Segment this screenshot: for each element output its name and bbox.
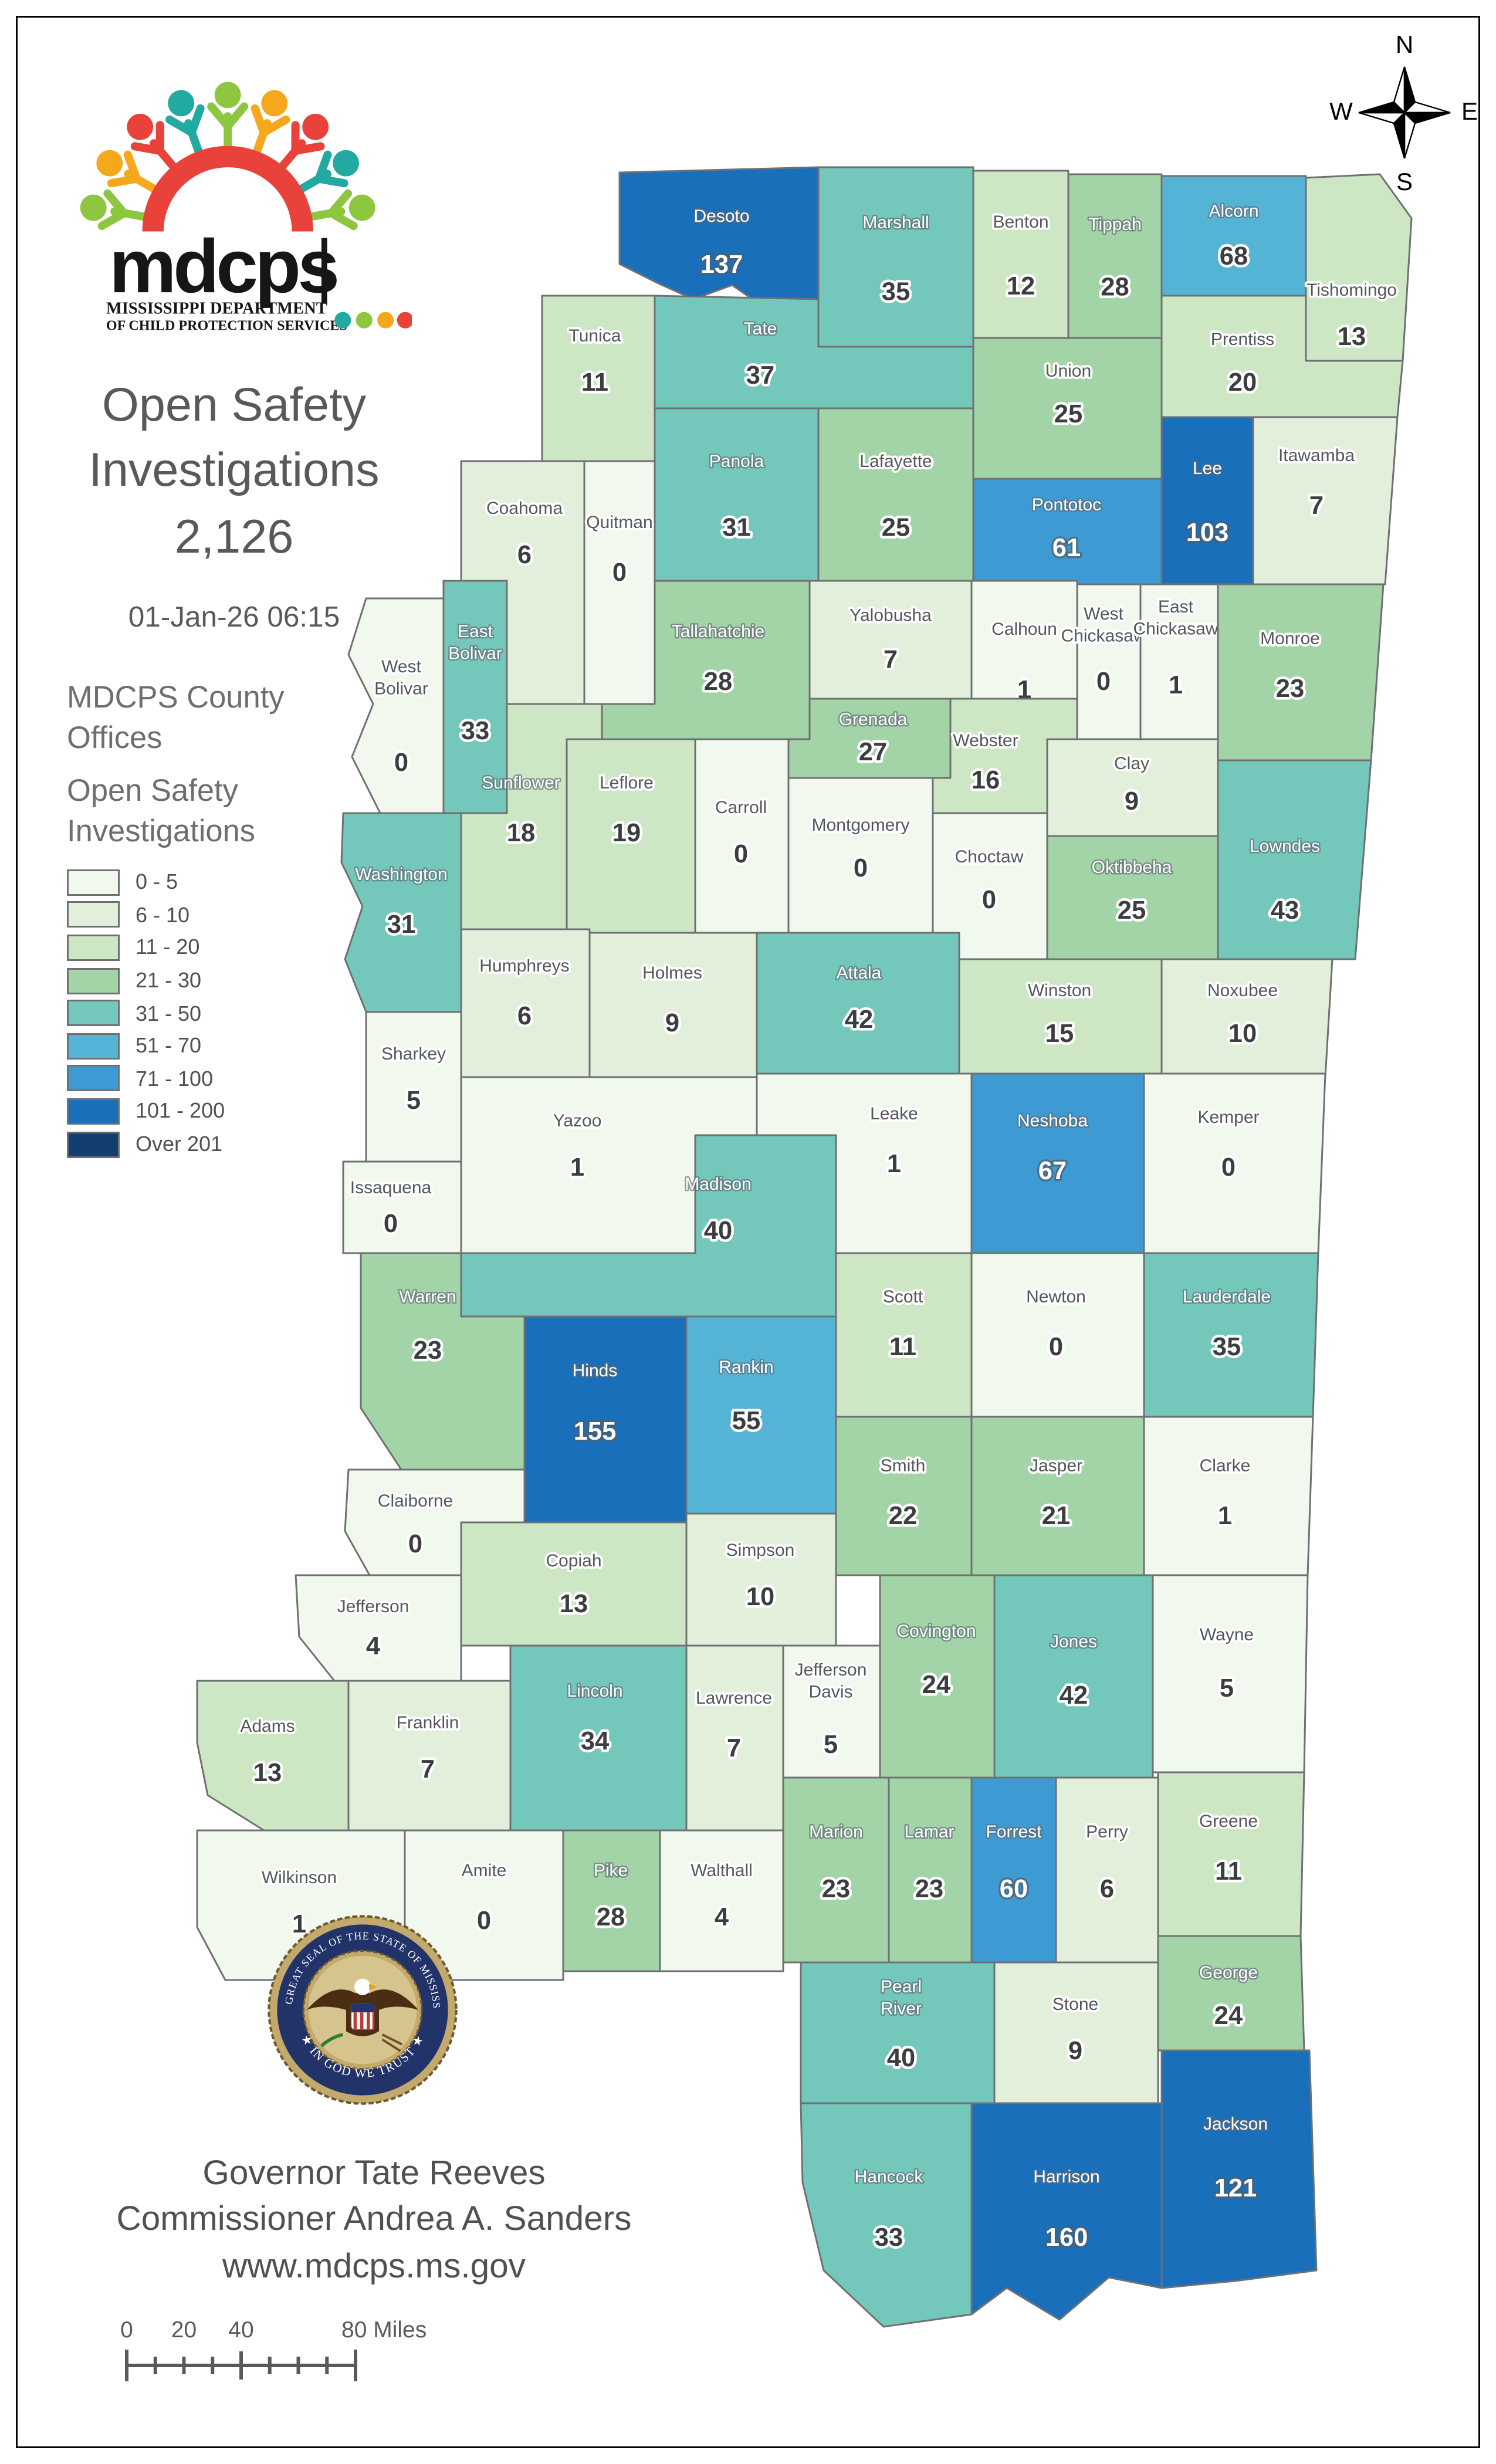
county-name: Newton — [1026, 1287, 1086, 1307]
county-value: 0 — [734, 840, 748, 868]
county-name: Jackson — [1203, 2114, 1268, 2134]
county-value: 160 — [1045, 2223, 1088, 2252]
county-george: George24 — [1158, 1936, 1304, 2050]
county-value: 15 — [1045, 1020, 1074, 1048]
scale-label-40: 40 — [228, 2317, 253, 2343]
footer-commissioner: Commissioner Andrea A. Sanders — [53, 2197, 695, 2243]
county-name: Panola — [709, 452, 764, 471]
county-value: 5 — [1220, 1674, 1234, 1703]
county-lowndes: Lowndes43 — [1218, 760, 1371, 959]
county-value: 28 — [704, 668, 732, 696]
county-name: Walthall — [691, 1861, 753, 1880]
county-lafayette: Lafayette25 — [818, 408, 973, 581]
county-name: Chickasaw — [1133, 620, 1218, 639]
county-quitman: Quitman0 — [584, 461, 655, 704]
county-value: 16 — [972, 766, 1000, 794]
county-shape — [783, 1778, 889, 1962]
county-value: 55 — [732, 1407, 760, 1435]
county-value: 19 — [612, 819, 641, 847]
county-value: 27 — [859, 738, 887, 766]
county-name: Franklin — [397, 1713, 459, 1732]
county-value: 0 — [477, 1907, 491, 1935]
county-clay: Clay9 — [1047, 739, 1218, 836]
county-name: Madison — [685, 1175, 751, 1194]
county-shape — [972, 1778, 1056, 1962]
county-value: 0 — [1221, 1153, 1236, 1182]
county-adams: Adams13 — [197, 1681, 348, 1830]
county-tishomingo: Tishomingo13 — [1306, 174, 1412, 361]
county-name: Noxubee — [1207, 981, 1278, 1000]
county-value: 43 — [1271, 896, 1299, 925]
county-name: Sharkey — [381, 1044, 446, 1064]
county-name: West — [381, 657, 421, 676]
county-shape — [655, 408, 818, 581]
county-name: Sunflower — [482, 773, 560, 793]
county-shape — [197, 1681, 348, 1830]
county-union: Union25 — [973, 338, 1162, 479]
county-value: 20 — [1228, 368, 1257, 397]
county-name: Coahoma — [486, 499, 563, 518]
county-name: Issaquena — [350, 1178, 432, 1197]
county-shape — [959, 959, 1162, 1077]
county-value: 23 — [414, 1336, 442, 1365]
county-value: 0 — [1096, 668, 1111, 696]
county-name: Leflore — [600, 773, 654, 793]
county-shape — [1158, 1936, 1304, 2050]
county-name: Warren — [399, 1287, 456, 1307]
county-value: 1 — [1218, 1502, 1232, 1530]
county-name: Hancock — [855, 2167, 924, 2187]
county-name: Lauderdale — [1183, 1287, 1271, 1307]
county-value: 5 — [824, 1731, 838, 1759]
county-shape — [818, 408, 973, 581]
county-name: Tate — [744, 319, 777, 339]
county-value: 31 — [387, 911, 415, 939]
county-grenada: Grenada27 — [788, 699, 950, 778]
county-winston: Winston15 — [959, 959, 1162, 1077]
map-scale-bar: 0 20 40 80 Miles — [102, 2316, 507, 2401]
county-holmes: Holmes9 — [590, 933, 757, 1077]
county-shape — [818, 167, 973, 347]
county-smith: Smith22 — [836, 1417, 972, 1575]
county-pontotoc: Pontotoc61 — [973, 479, 1162, 584]
county-value: 0 — [408, 1530, 422, 1558]
county-value: 42 — [845, 1006, 873, 1034]
county-name: Yazoo — [553, 1111, 602, 1131]
county-value: 0 — [612, 559, 627, 587]
county-value: 34 — [581, 1727, 609, 1755]
county-clarke: Clarke1 — [1144, 1417, 1313, 1575]
county-rankin: Rankin55 — [686, 1316, 836, 1514]
county-washington: Washington31 — [341, 813, 461, 1012]
county-shape — [757, 933, 959, 1074]
county-name: Union — [1045, 361, 1091, 381]
county-value: 0 — [854, 854, 868, 882]
county-name: Oktibbeha — [1092, 858, 1172, 877]
county-shape — [810, 581, 972, 699]
county-jefferson: Jefferson4 — [296, 1575, 461, 1681]
county-shape — [1144, 1417, 1313, 1575]
county-name: Choctaw — [955, 847, 1024, 867]
county-name: Monroe — [1260, 629, 1320, 648]
county-value: 23 — [915, 1875, 943, 1903]
county-name: Perry — [1086, 1822, 1128, 1842]
county-value: 9 — [1125, 787, 1139, 815]
county-shape — [620, 167, 818, 310]
county-alcorn: Alcorn68 — [1162, 176, 1306, 296]
county-tunica: Tunica11 — [542, 296, 655, 461]
county-scott: Scott11 — [836, 1253, 972, 1417]
county-value: 1 — [1169, 671, 1183, 699]
county-leflore: Leflore19 — [567, 739, 695, 933]
county-value: 67 — [1038, 1157, 1067, 1185]
county-east-chickasaw: EastChickasaw1 — [1133, 584, 1218, 739]
county-name: Wilkinson — [262, 1868, 337, 1887]
county-name: Tishomingo — [1307, 280, 1397, 300]
county-name: Forrest — [986, 1822, 1042, 1842]
county-value: 155 — [574, 1417, 617, 1446]
county-name: Jones — [1050, 1632, 1097, 1651]
county-name: Holmes — [642, 963, 702, 983]
county-marshall: Marshall35 — [818, 167, 973, 347]
county-shape — [563, 1830, 660, 1971]
county-name: Hinds — [573, 1361, 618, 1380]
county-shape — [461, 1522, 686, 1646]
county-value: 6 — [517, 541, 532, 569]
county-value: 21 — [1042, 1502, 1070, 1530]
county-shape — [296, 1575, 461, 1681]
county-value: 68 — [1220, 242, 1248, 270]
county-name: Washington — [355, 865, 447, 884]
county-value: 31 — [722, 514, 750, 542]
county-name: Smith — [881, 1456, 926, 1475]
county-greene: Greene11 — [1158, 1772, 1304, 1936]
county-name: Lincoln — [567, 1681, 622, 1701]
footer-website: www.mdcps.ms.gov — [53, 2243, 695, 2290]
county-value: 5 — [407, 1087, 421, 1115]
county-simpson: Simpson10 — [686, 1514, 836, 1646]
county-value: 10 — [746, 1583, 774, 1611]
county-shape — [1162, 417, 1253, 584]
county-name: Alcorn — [1209, 201, 1258, 221]
county-name: East — [458, 622, 493, 641]
county-name: Adams — [240, 1717, 295, 1736]
county-name: River — [881, 1999, 922, 2019]
county-name: Neshoba — [1017, 1111, 1088, 1131]
county-shape — [686, 1316, 836, 1514]
county-shape — [1158, 1772, 1304, 1936]
county-jackson: Jackson121 — [1162, 2050, 1316, 2288]
county-pearl-river: PearlRiver40 — [801, 1962, 994, 2103]
county-name: Quitman — [586, 513, 652, 532]
county-name: Kemper — [1197, 1108, 1259, 1127]
county-name: George — [1199, 1963, 1258, 1982]
county-value: 9 — [665, 1009, 679, 1037]
county-shape — [1068, 174, 1162, 338]
county-humphreys: Humphreys6 — [461, 929, 590, 1077]
mississippi-county-map: Desoto137Marshall35Benton12Tippah28Alcor… — [0, 0, 1496, 2464]
county-sharkey: Sharkey5 — [366, 1012, 461, 1162]
county-kemper: Kemper0 — [1144, 1074, 1325, 1253]
county-value: 33 — [875, 2223, 903, 2252]
county-name: Marshall — [862, 213, 929, 232]
county-value: 13 — [1338, 323, 1366, 351]
county-jones: Jones42 — [994, 1575, 1153, 1778]
footer-credits: Governor Tate Reeves Commissioner Andrea… — [53, 2151, 695, 2290]
county-name: Webster — [953, 731, 1018, 750]
county-name: Stone — [1052, 1995, 1098, 2014]
county-value: 13 — [560, 1590, 588, 1618]
scale-label-80: 80 Miles — [341, 2317, 427, 2343]
county-perry: Perry6 — [1056, 1778, 1158, 1962]
county-name: Attala — [837, 963, 882, 983]
county-value: 7 — [1309, 492, 1324, 520]
county-name: Wayne — [1200, 1625, 1254, 1644]
county-shape — [1162, 176, 1306, 296]
county-value: 7 — [884, 646, 898, 674]
county-attala: Attala42 — [757, 933, 959, 1074]
county-name: Lowndes — [1250, 837, 1320, 856]
county-name: Winston — [1028, 981, 1091, 1000]
county-pike: Pike28 — [563, 1830, 660, 1971]
county-value: 7 — [727, 1734, 741, 1762]
county-name: Grenada — [839, 710, 908, 729]
county-name: Amite — [462, 1861, 507, 1880]
county-value: 40 — [704, 1217, 732, 1245]
county-shape — [1218, 584, 1383, 760]
mississippi-state-seal: THE GREAT SEAL OF THE STATE OF MISSISSIP… — [264, 1911, 461, 2108]
county-name: Calhoun — [991, 620, 1057, 639]
report-page: mdcps MISSISSIPPI DEPARTMENT OF CHILD PR… — [0, 0, 1496, 2464]
county-value: 0 — [394, 749, 408, 777]
county-newton: Newton0 — [972, 1253, 1144, 1417]
county-name: Jasper — [1030, 1456, 1082, 1475]
county-value: 11 — [889, 1333, 916, 1361]
county-name: Lawrence — [696, 1688, 772, 1708]
county-value: 11 — [581, 368, 608, 397]
county-shape — [973, 171, 1068, 338]
county-value: 35 — [1213, 1333, 1241, 1361]
county-name: East — [1158, 597, 1194, 617]
county-value: 35 — [882, 277, 910, 306]
county-name: Clarke — [1200, 1456, 1251, 1475]
county-shape — [348, 598, 444, 813]
county-name: Tallahatchie — [672, 622, 764, 641]
county-name: Marion — [809, 1822, 863, 1842]
county-forrest: Forrest60 — [972, 1778, 1056, 1962]
county-shape — [972, 2103, 1162, 2320]
county-value: 0 — [982, 886, 996, 914]
county-lamar: Lamar23 — [889, 1778, 972, 1962]
county-name: Bolivar — [448, 644, 502, 664]
county-name: Claiborne — [378, 1491, 453, 1511]
county-name: Davis — [808, 1683, 852, 1702]
county-lincoln: Lincoln34 — [510, 1646, 686, 1830]
county-shape — [972, 1417, 1144, 1575]
county-name: Desoto — [693, 207, 749, 226]
county-name: Rankin — [719, 1358, 773, 1377]
county-panola: Panola31 — [655, 408, 818, 581]
county-name: Lamar — [904, 1822, 954, 1842]
county-value: 25 — [1118, 896, 1146, 925]
county-value: 6 — [1100, 1875, 1114, 1903]
county-name: Covington — [896, 1622, 976, 1641]
county-name: Pike — [594, 1861, 628, 1880]
county-name: West — [1084, 604, 1123, 624]
county-shape — [1162, 959, 1332, 1077]
county-value: 9 — [1068, 2037, 1082, 2065]
county-value: 40 — [887, 2044, 915, 2072]
county-copiah: Copiah13 — [461, 1522, 686, 1646]
county-value: 1 — [570, 1153, 584, 1182]
county-shape — [836, 1417, 972, 1575]
county-name: Jefferson — [337, 1597, 409, 1616]
county-value: 4 — [366, 1632, 380, 1660]
county-shape — [994, 1575, 1153, 1778]
county-name: Itawamba — [1278, 446, 1355, 465]
county-name: Greene — [1199, 1812, 1258, 1831]
county-lawrence: Lawrence7 — [686, 1646, 783, 1830]
county-value: 33 — [461, 717, 489, 745]
county-jasper: Jasper21 — [972, 1417, 1144, 1575]
county-noxubee: Noxubee10 — [1162, 959, 1332, 1077]
county-covington: Covington24 — [880, 1575, 994, 1778]
county-jefferson-davis: JeffersonDavis5 — [783, 1646, 880, 1778]
county-value: 37 — [746, 361, 774, 390]
county-name: Lee — [1193, 459, 1222, 478]
county-walthall: Walthall4 — [660, 1830, 783, 1971]
county-shape — [343, 1162, 461, 1253]
county-tippah: Tippah28 — [1068, 174, 1162, 338]
county-franklin: Franklin7 — [348, 1681, 510, 1830]
county-shape — [1162, 2050, 1316, 2288]
county-value: 28 — [1101, 273, 1129, 301]
county-shape — [686, 1514, 836, 1646]
county-wayne: Wayne5 — [1153, 1575, 1308, 1772]
county-value: 18 — [507, 819, 535, 847]
county-value: 0 — [384, 1210, 398, 1238]
county-value: 4 — [715, 1903, 729, 1931]
county-name: Clay — [1114, 754, 1149, 773]
county-name: Pontotoc — [1032, 495, 1101, 515]
county-value: 137 — [700, 251, 743, 279]
county-name: Harrison — [1033, 2167, 1099, 2187]
county-name: Benton — [993, 212, 1048, 232]
county-west-bolivar: WestBolivar0 — [348, 598, 444, 813]
county-name: Yalobusha — [849, 605, 932, 625]
county-shape — [889, 1778, 972, 1962]
county-value: 23 — [1276, 675, 1304, 703]
county-carroll: Carroll0 — [695, 739, 788, 933]
county-shape — [801, 2103, 972, 2327]
footer-governor: Governor Tate Reeves — [53, 2151, 695, 2197]
county-value: 24 — [1214, 2002, 1243, 2030]
county-value: 61 — [1052, 534, 1081, 562]
county-shape — [590, 933, 757, 1077]
county-shape — [1218, 760, 1371, 959]
scale-label-0: 0 — [120, 2317, 133, 2343]
county-name: Simpson — [726, 1541, 795, 1560]
county-name: Leake — [870, 1104, 918, 1123]
county-lauderdale: Lauderdale35 — [1144, 1253, 1318, 1417]
county-value: 60 — [1000, 1875, 1028, 1903]
county-name: Jefferson — [795, 1660, 867, 1680]
county-name: Tunica — [569, 326, 621, 346]
county-lee: Lee103 — [1162, 417, 1253, 584]
scale-label-20: 20 — [171, 2317, 197, 2343]
county-hancock: Hancock33 — [801, 2103, 972, 2327]
county-value: 25 — [1054, 400, 1082, 428]
county-monroe: Monroe23 — [1218, 584, 1383, 760]
county-name: Copiah — [546, 1551, 601, 1571]
county-value: 103 — [1186, 519, 1229, 547]
county-value: 7 — [421, 1755, 435, 1783]
county-value: 11 — [1215, 1857, 1242, 1886]
county-shape — [660, 1830, 783, 1971]
county-value: 13 — [253, 1759, 282, 1787]
county-name: Bolivar — [374, 679, 428, 699]
county-name: Pearl — [881, 1977, 922, 1996]
county-name: Scott — [883, 1287, 923, 1307]
county-value: 23 — [822, 1875, 850, 1903]
county-desoto: Desoto137 — [620, 167, 818, 310]
county-value: 24 — [922, 1671, 950, 1699]
county-name: Humphreys — [479, 956, 569, 976]
county-value: 22 — [889, 1502, 917, 1530]
county-stone: Stone9 — [994, 1962, 1158, 2103]
county-shape — [695, 739, 788, 933]
county-yalobusha: Yalobusha7 — [810, 581, 972, 699]
county-harrison: Harrison160 — [972, 2103, 1162, 2320]
county-montgomery: Montgomery0 — [788, 778, 933, 933]
county-value: 121 — [1214, 2174, 1257, 2202]
county-value: 1 — [887, 1150, 901, 1178]
scale-bar-line — [127, 2350, 356, 2381]
county-value: 0 — [1049, 1333, 1063, 1361]
county-value: 25 — [882, 514, 910, 542]
county-name: Lafayette — [859, 452, 932, 471]
county-name: Prentiss — [1211, 330, 1274, 349]
county-itawamba: Itawamba7 — [1253, 417, 1397, 584]
county-value: 28 — [597, 1903, 625, 1931]
county-shape — [994, 1962, 1158, 2103]
county-name: Carroll — [715, 798, 767, 817]
county-name: Tippah — [1088, 215, 1142, 234]
county-oktibbeha: Oktibbeha25 — [1047, 836, 1218, 959]
county-name: Montgomery — [812, 815, 910, 835]
county-shape — [1253, 417, 1397, 584]
county-value: 42 — [1060, 1681, 1088, 1710]
county-marion: Marion23 — [783, 1778, 889, 1962]
county-issaquena: Issaquena0 — [343, 1162, 461, 1253]
county-shape — [1056, 1778, 1158, 1962]
county-benton: Benton12 — [973, 171, 1068, 338]
county-value: 12 — [1007, 272, 1035, 300]
county-hinds: Hinds155 — [524, 1316, 686, 1522]
county-value: 10 — [1228, 1020, 1257, 1048]
county-value: 6 — [517, 1002, 532, 1030]
county-neshoba: Neshoba67 — [972, 1074, 1144, 1253]
